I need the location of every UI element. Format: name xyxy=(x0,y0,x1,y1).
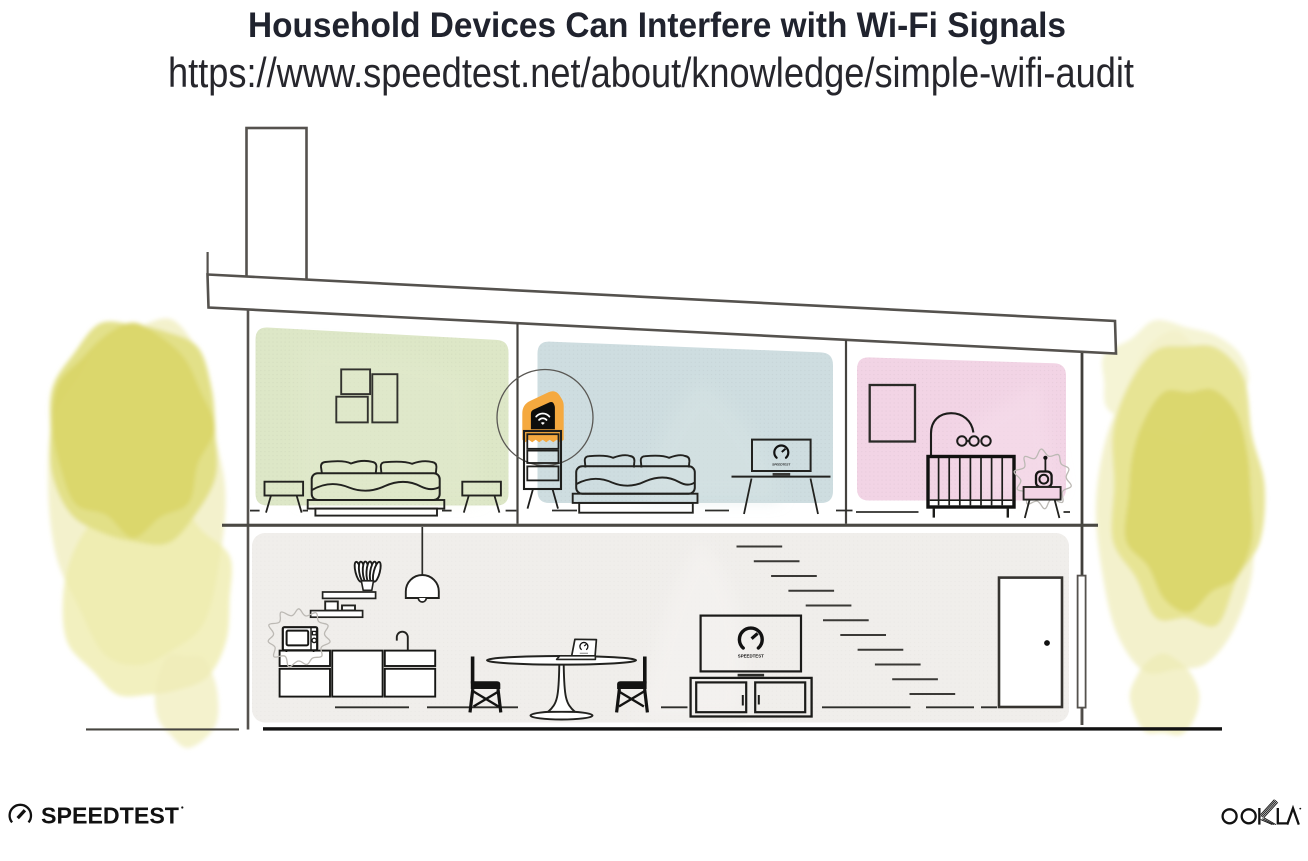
svg-text:Household Devices Can Interfer: Household Devices Can Interfere with Wi-… xyxy=(248,5,1066,45)
svg-text:SPEEDTEST: SPEEDTEST xyxy=(772,463,790,467)
svg-text:https://www.speedtest.net/abou: https://www.speedtest.net/about/knowledg… xyxy=(168,49,1134,96)
svg-text:SPEEDTEST: SPEEDTEST xyxy=(738,653,764,658)
svg-text:SPEEDTEST: SPEEDTEST xyxy=(41,802,179,828)
